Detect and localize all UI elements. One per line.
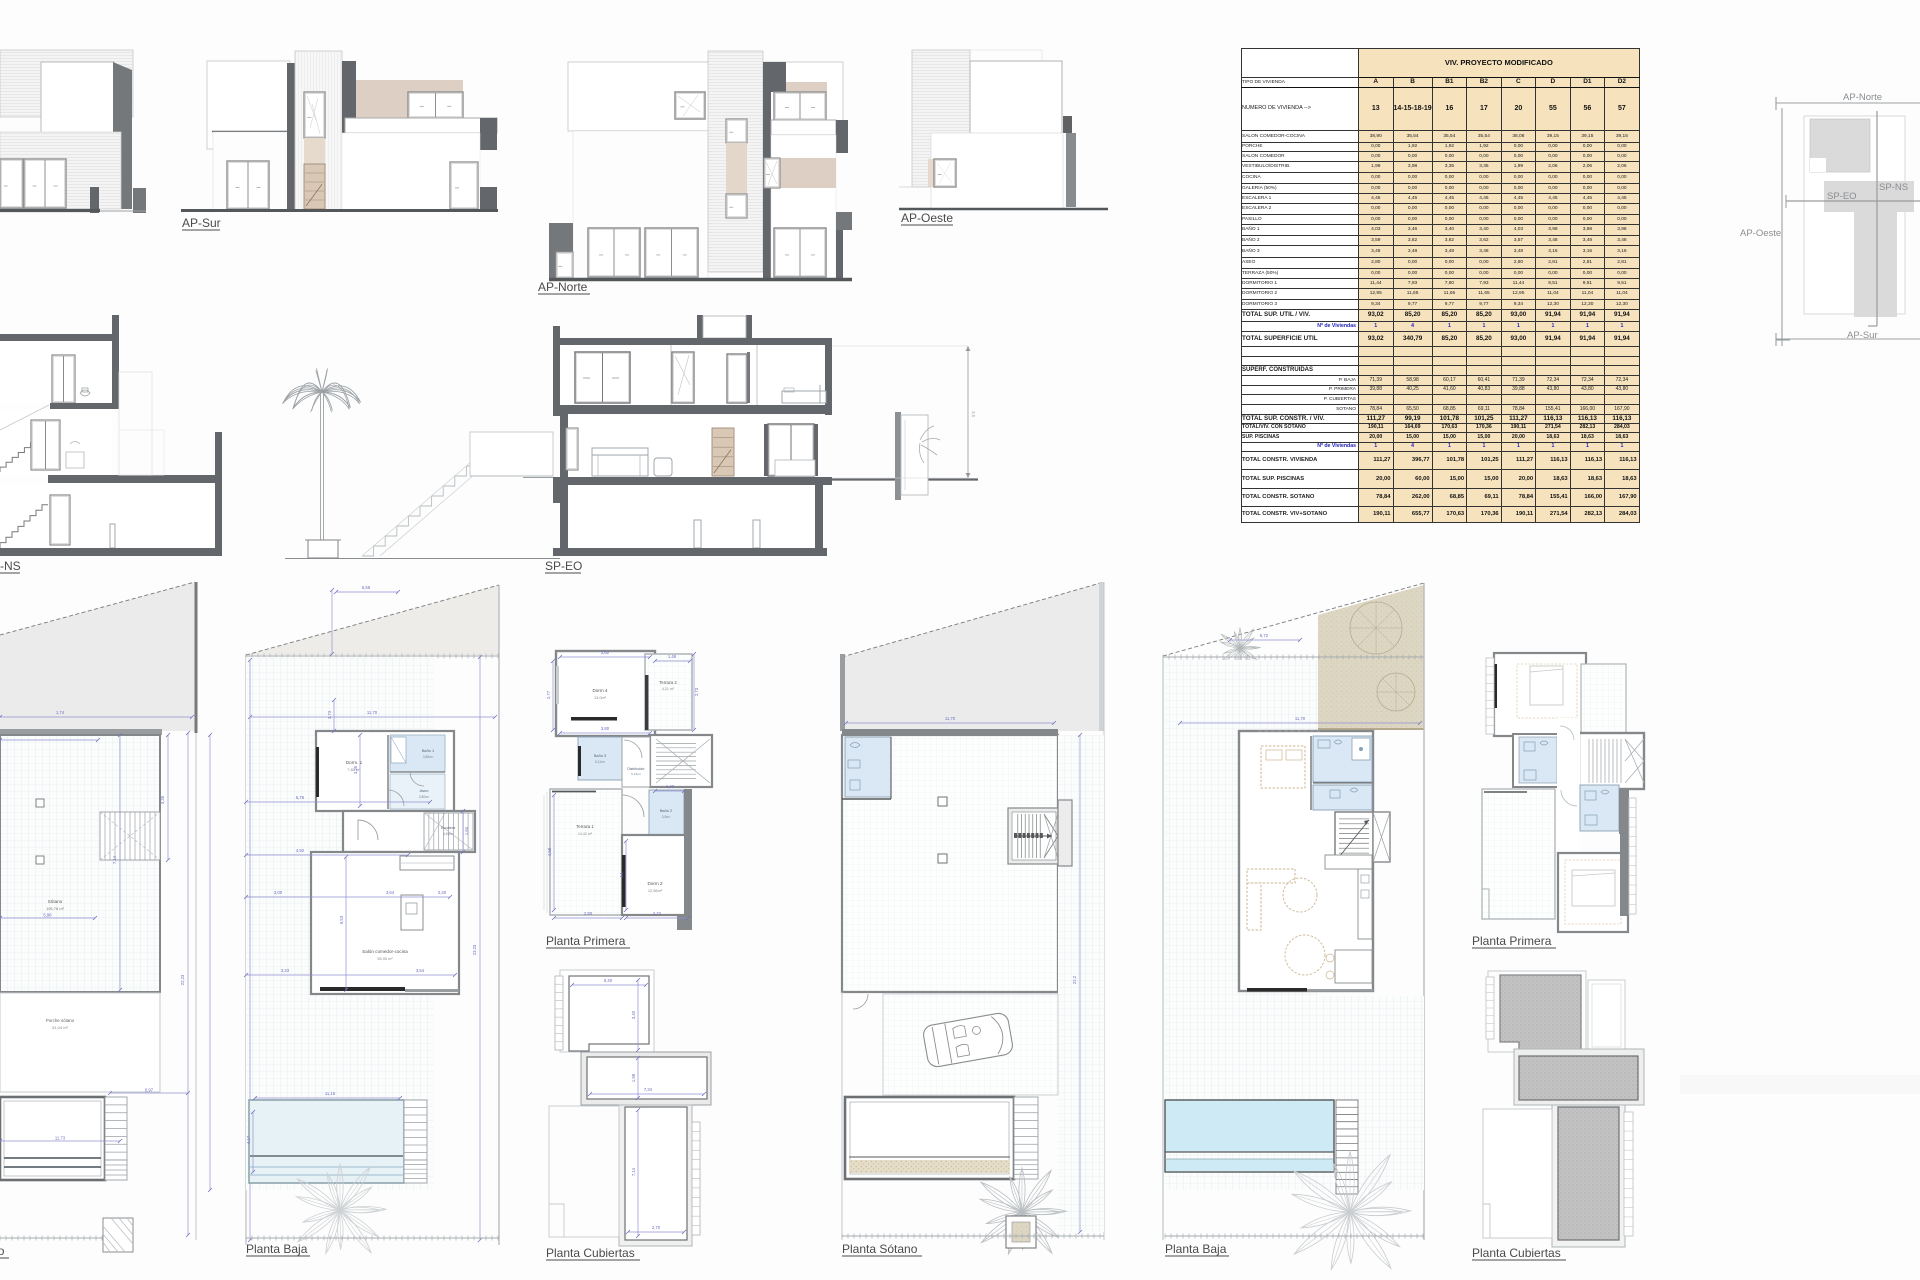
svg-text:Distribuidor: Distribuidor	[627, 767, 645, 771]
svg-text:7,34: 7,34	[644, 1087, 653, 1092]
svg-text:3,80: 3,80	[601, 726, 610, 731]
svg-text:Terraza 2: Terraza 2	[659, 680, 677, 685]
svg-text:22,23: 22,23	[180, 974, 185, 985]
svg-text:Planta Primera: Planta Primera	[546, 934, 626, 948]
svg-text:Baño 2: Baño 2	[660, 808, 672, 813]
svg-text:4,45m²: 4,45m²	[443, 832, 454, 836]
svg-text:3,85m²: 3,85m²	[423, 755, 434, 759]
svg-text:4,92: 4,92	[296, 848, 305, 853]
svg-text:3,35: 3,35	[353, 765, 358, 774]
svg-text:23,23: 23,23	[472, 944, 477, 955]
svg-text:11,73: 11,73	[55, 1136, 66, 1141]
svg-text:13,0m²: 13,0m²	[594, 695, 607, 700]
svg-text:4,58: 4,58	[547, 847, 552, 856]
svg-text:4,17: 4,17	[246, 1135, 251, 1144]
svg-text:2,40: 2,40	[438, 890, 447, 895]
svg-text:5,72: 5,72	[1260, 633, 1269, 638]
svg-text:3,5: 3,5	[971, 411, 976, 417]
svg-text:AP-Sur: AP-Sur	[1847, 330, 1878, 341]
svg-text:4,21 m²: 4,21 m²	[662, 687, 675, 691]
svg-text:Salón comedor-cocina: Salón comedor-cocina	[362, 949, 408, 954]
svg-text:51,04 m²: 51,04 m²	[52, 1025, 68, 1030]
svg-text:4,1: 4,1	[619, 871, 624, 877]
svg-text:SP-NS: SP-NS	[1879, 182, 1908, 193]
svg-text:3,5m²: 3,5m²	[662, 815, 672, 819]
svg-text:7,14: 7,14	[112, 855, 117, 864]
svg-text:1,74: 1,74	[56, 710, 65, 715]
svg-text:0,97: 0,97	[145, 1088, 154, 1093]
svg-text:3,64: 3,64	[386, 890, 395, 895]
svg-text:11,70: 11,70	[945, 716, 956, 721]
svg-text:3,35: 3,35	[160, 795, 165, 804]
svg-text:Porche sótano: Porche sótano	[46, 1018, 75, 1023]
svg-text:Aseo: Aseo	[420, 788, 429, 793]
svg-text:11,15: 11,15	[325, 1091, 336, 1096]
svg-text:2,77: 2,77	[546, 690, 551, 699]
svg-text:Planta Sótano: Planta Sótano	[0, 1244, 5, 1258]
svg-text:2,72: 2,72	[653, 911, 662, 916]
svg-text:12,56m²: 12,56m²	[648, 888, 663, 893]
svg-text:5,11m²: 5,11m²	[595, 760, 606, 764]
svg-text:1,98: 1,98	[631, 1073, 636, 1082]
svg-text:11,70: 11,70	[1295, 716, 1306, 721]
svg-text:7,14: 7,14	[631, 1167, 636, 1176]
svg-text:3,40: 3,40	[631, 1010, 636, 1019]
svg-text:Planta Sótano: Planta Sótano	[842, 1242, 918, 1256]
svg-text:AP-Norte: AP-Norte	[538, 280, 588, 294]
svg-text:105,78 m²: 105,78 m²	[46, 906, 65, 911]
svg-text:Planta Baja: Planta Baja	[1165, 1242, 1227, 1256]
svg-text:55,90 m²: 55,90 m²	[377, 956, 393, 961]
svg-text:5,58: 5,58	[362, 585, 371, 590]
svg-text:14,42 m²: 14,42 m²	[578, 832, 593, 836]
svg-text:SP-EO: SP-EO	[1827, 191, 1857, 202]
svg-text:AP-Oeste: AP-Oeste	[901, 211, 953, 225]
svg-text:5,19m²: 5,19m²	[631, 772, 641, 776]
svg-text:5,40: 5,40	[604, 978, 613, 983]
svg-text:11,70: 11,70	[367, 710, 378, 715]
svg-text:2,70: 2,70	[652, 1225, 661, 1230]
svg-text:SP-NS: SP-NS	[0, 559, 21, 573]
svg-text:AP-Oeste: AP-Oeste	[1740, 228, 1781, 239]
svg-text:AP-Norte: AP-Norte	[1843, 92, 1882, 103]
svg-text:SP-EO: SP-EO	[545, 559, 582, 573]
svg-text:Sótano: Sótano	[48, 899, 63, 904]
svg-text:5,76: 5,76	[296, 795, 305, 800]
svg-text:Baño 3: Baño 3	[594, 753, 606, 758]
svg-text:22,2: 22,2	[1072, 975, 1077, 984]
svg-text:Planta Primera: Planta Primera	[1472, 934, 1552, 948]
svg-text:Dorm 4: Dorm 4	[592, 688, 608, 693]
svg-text:1,42: 1,42	[666, 784, 675, 789]
svg-text:Terraza 1: Terraza 1	[576, 824, 594, 829]
svg-text:3,73: 3,73	[327, 710, 332, 719]
svg-text:AP-Sur: AP-Sur	[182, 216, 221, 230]
svg-text:Planta Cubiertas: Planta Cubiertas	[1472, 1246, 1561, 1260]
svg-text:Baño 1: Baño 1	[422, 748, 434, 753]
svg-text:Escalera: Escalera	[441, 826, 456, 830]
svg-text:Planta Baja: Planta Baja	[246, 1242, 308, 1256]
svg-text:Planta Cubiertas: Planta Cubiertas	[546, 1246, 635, 1260]
svg-text:3,00: 3,00	[274, 890, 283, 895]
svg-text:5,98: 5,98	[43, 913, 52, 918]
svg-text:2,73: 2,73	[694, 687, 699, 696]
svg-text:3,33: 3,33	[281, 968, 290, 973]
svg-text:2,80: 2,80	[584, 911, 593, 916]
svg-text:1,48: 1,48	[668, 654, 677, 659]
svg-text:2,80m²: 2,80m²	[419, 795, 430, 799]
svg-text:3,54: 3,54	[416, 968, 425, 973]
svg-text:3,62: 3,62	[601, 650, 610, 655]
svg-text:Dorm 2: Dorm 2	[647, 881, 663, 886]
svg-text:9,53: 9,53	[339, 915, 344, 924]
svg-text:1,84: 1,84	[464, 826, 469, 835]
